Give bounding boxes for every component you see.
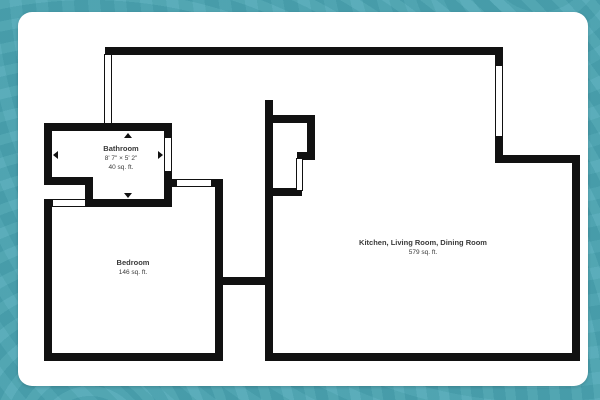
- floor-plan: Bathroom 8' 7" × 5' 2" 40 sq. ft. Bedroo…: [0, 0, 600, 400]
- window-main-topright: [495, 65, 503, 137]
- dimension-arrow-right-icon: [158, 151, 163, 159]
- wall-bathroom-bottom: [85, 199, 172, 207]
- dimension-arrow-up-icon: [124, 133, 132, 138]
- dimension-arrow-left-icon: [53, 151, 58, 159]
- wall-bathroom-left: [44, 123, 52, 185]
- room-name: Bedroom: [117, 258, 150, 268]
- wall-main-right: [572, 155, 580, 361]
- wall-bedroom-bottom: [44, 353, 223, 361]
- floorplan-card: Bathroom 8' 7" × 5' 2" 40 sq. ft. Bedroo…: [18, 12, 588, 386]
- room-dimensions: 8' 7" × 5' 2": [103, 154, 138, 163]
- room-area: 40 sq. ft.: [103, 163, 138, 172]
- wall-bedroom-right: [215, 179, 223, 361]
- window-bathroom-right: [164, 137, 172, 172]
- wall-main-topright-horizontal: [495, 155, 580, 163]
- room-area: 146 sq. ft.: [117, 268, 150, 277]
- dimension-arrow-down-icon: [124, 193, 132, 198]
- wall-main-left: [265, 100, 273, 361]
- wall-bathroom-top: [44, 123, 172, 131]
- window-bedroom-top: [52, 199, 86, 207]
- room-label-kitchen-living-dining: Kitchen, Living Room, Dining Room 579 sq…: [359, 238, 487, 257]
- room-label-bedroom: Bedroom 146 sq. ft.: [117, 258, 150, 277]
- room-area: 579 sq. ft.: [359, 248, 487, 257]
- room-name: Kitchen, Living Room, Dining Room: [359, 238, 487, 248]
- wall-top: [105, 47, 503, 55]
- wall-main-bottom: [265, 353, 580, 361]
- room-name: Bathroom: [103, 144, 138, 154]
- room-label-bathroom: Bathroom 8' 7" × 5' 2" 40 sq. ft.: [103, 144, 138, 172]
- wall-bedroom-left: [44, 199, 52, 361]
- window-entry-left: [104, 54, 112, 124]
- door-closet: [296, 158, 303, 191]
- window-hall-top: [176, 179, 212, 187]
- teal-frame: Bathroom 8' 7" × 5' 2" 40 sq. ft. Bedroo…: [0, 0, 600, 400]
